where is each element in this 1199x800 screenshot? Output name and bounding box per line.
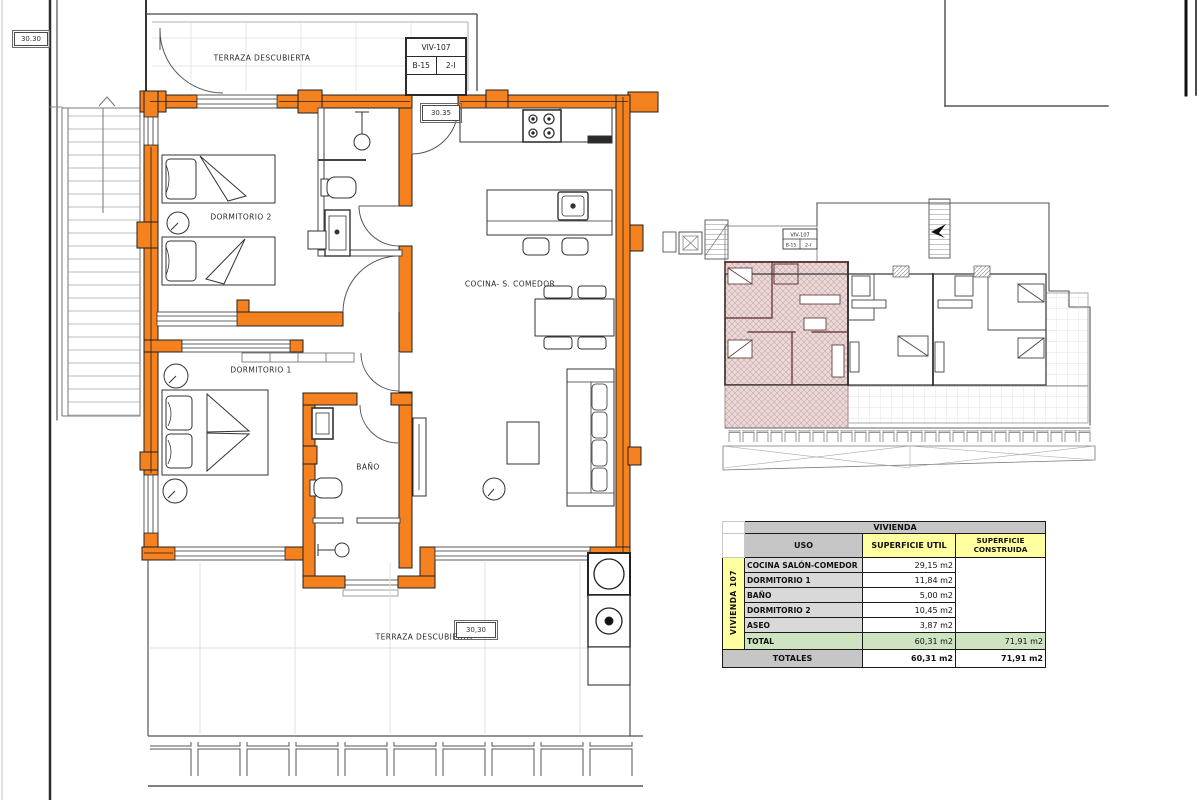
unit-code: VIV-107 xyxy=(407,39,465,57)
plan-drawing: VIV-107 B-15 2-I xyxy=(0,0,1199,800)
chair-icon xyxy=(544,337,572,349)
label-cocina-comedor: COCINA- S. COMEDOR xyxy=(465,280,555,289)
total-construida: 71,91 m2 xyxy=(956,633,1046,650)
table-side-label: VIVIENDA 107 xyxy=(723,558,745,650)
col-header-uso: USO xyxy=(745,534,863,558)
dimension-box-entrance: 30.35 xyxy=(422,105,460,121)
kitchen-island xyxy=(487,190,612,235)
kitchen-living-furniture xyxy=(413,108,614,506)
coffee-table-icon xyxy=(507,422,539,464)
overview-unit-code: VIV-107 xyxy=(790,233,809,239)
row-value: 11,84 m2 xyxy=(863,573,956,588)
toilet-icon xyxy=(327,177,356,198)
shower-icon xyxy=(354,134,370,150)
overview-unit-floor: 2-I xyxy=(805,243,811,249)
overview-unit-block: B-15 xyxy=(786,243,797,249)
row-label: DORMITORIO 2 xyxy=(745,603,863,618)
aseo-fixtures xyxy=(308,112,370,256)
bottom-terrace xyxy=(148,553,643,786)
totales-label: TOTALES xyxy=(723,650,863,668)
totales-construida: 71,91 m2 xyxy=(956,650,1046,668)
label-terraza-top: TERRAZA DESCUBIERTA xyxy=(214,54,311,63)
planter-icon xyxy=(893,266,909,277)
toilet-icon xyxy=(314,478,342,498)
row-label: BAÑO xyxy=(745,588,863,603)
planter-icon xyxy=(974,266,990,277)
overview-balustrade xyxy=(727,430,1091,442)
total-label: TOTAL xyxy=(745,633,863,650)
row-label: DORMITORIO 1 xyxy=(745,573,863,588)
chair-icon xyxy=(578,286,606,298)
unit-tag-empty-row xyxy=(407,75,465,94)
label-bano: BAÑO xyxy=(356,463,379,472)
label-dormitorio1: DORMITORIO 1 xyxy=(230,366,291,375)
col-header-superficie-util: SUPERFICIE UTIL xyxy=(863,534,956,558)
overview-plan: VIV-107 B-15 2-I xyxy=(663,199,1095,470)
stool-icon xyxy=(523,238,549,255)
dormitorio1-furniture xyxy=(162,364,268,503)
aseo-door-arc xyxy=(359,206,399,246)
row-label: COCINA SALÓN-COMEDOR xyxy=(745,558,863,573)
construida-empty-cell xyxy=(956,558,1046,633)
tv-unit-icon xyxy=(413,418,426,496)
row-value: 29,15 m2 xyxy=(863,558,956,573)
stool-icon xyxy=(562,238,588,255)
total-util: 60,31 m2 xyxy=(863,633,956,650)
unit-floor: 2-I xyxy=(437,57,466,74)
shower-icon xyxy=(335,543,349,557)
highlighted-terrace xyxy=(725,385,848,428)
hall-door-arc xyxy=(343,256,399,312)
stove-icon xyxy=(523,110,561,142)
unit-block: B-15 xyxy=(407,57,437,74)
overview-unit-tag: VIV-107 B-15 2-I xyxy=(783,229,817,249)
stair-direction-arrow-icon xyxy=(99,97,115,106)
unit-tag-box: VIV-107 B-15 2-I xyxy=(405,37,467,96)
dining-table-icon xyxy=(535,299,614,336)
balustrade xyxy=(150,742,638,776)
bathroom-door-arc xyxy=(360,405,398,443)
row-label: ASEO xyxy=(745,618,863,633)
bathroom-fixtures xyxy=(310,408,349,557)
terrace-tile-grid xyxy=(150,562,628,734)
row-value: 10,45 m2 xyxy=(863,603,956,618)
dimension-box-top-left: 30.30 xyxy=(14,32,48,46)
row-value: 5,00 m2 xyxy=(863,588,956,603)
outdoor-kitchen-unit xyxy=(588,553,630,685)
table-title: VIVIENDA xyxy=(745,522,1046,534)
area-table: VIVIENDA USO SUPERFICIE UTIL SUPERFICIE … xyxy=(722,521,1046,668)
totales-util: 60,31 m2 xyxy=(863,650,956,668)
col-header-superficie-construida: SUPERFICIE CONSTRUIDA xyxy=(956,534,1046,558)
label-dormitorio2: DORMITORIO 2 xyxy=(210,213,271,222)
chair-icon xyxy=(578,337,606,349)
outdoor-sink-icon xyxy=(594,559,624,589)
exterior-staircase xyxy=(62,97,140,416)
floor-plan-sheet: VIV-107 B-15 2-I TERRAZA DESCUBIERTA DOR… xyxy=(0,0,1199,800)
row-value: 3,87 m2 xyxy=(863,618,956,633)
corridor-door-arc xyxy=(361,353,399,391)
dimension-box-terrace: 30,30 xyxy=(456,622,496,638)
